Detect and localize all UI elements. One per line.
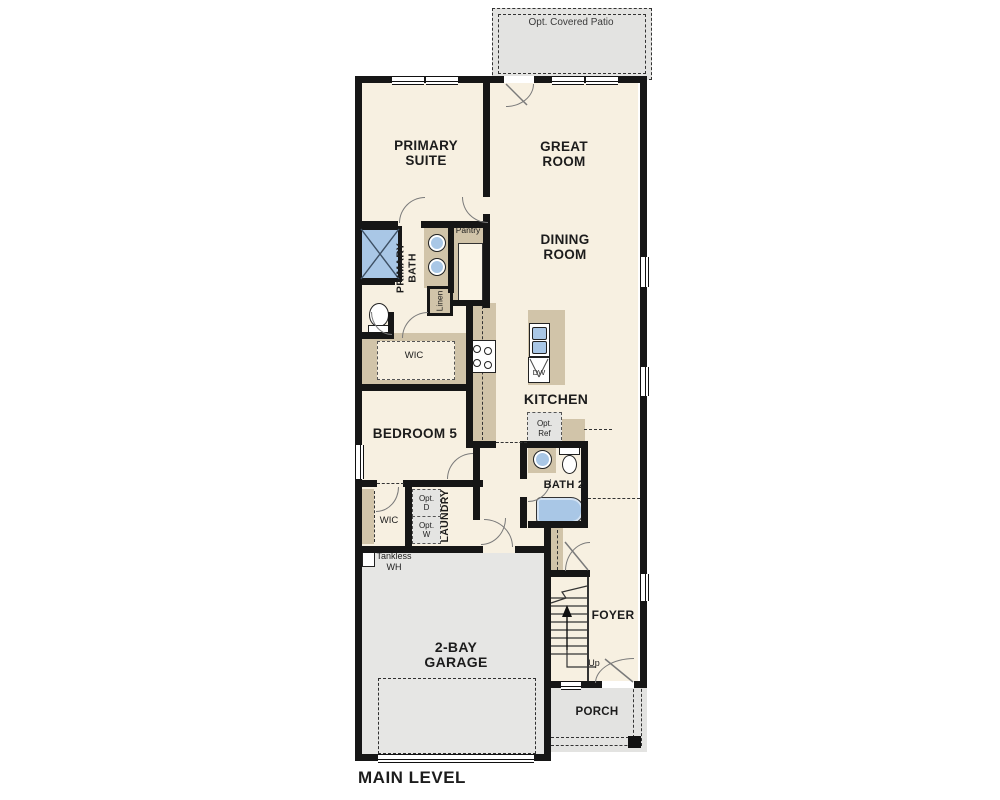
cooktop-icon <box>469 340 496 373</box>
island-sink-basin <box>532 341 547 354</box>
wall <box>466 305 473 391</box>
window <box>552 76 584 85</box>
window <box>355 445 364 479</box>
window <box>426 76 458 85</box>
porch-column <box>628 736 641 748</box>
wall <box>528 521 588 528</box>
tankless-line2: WH <box>376 562 411 573</box>
window <box>640 367 649 396</box>
room-label-bath2: BATH 2 <box>544 479 585 491</box>
room-label-great-room: GREAT <box>540 140 588 155</box>
sink-icon <box>428 234 446 252</box>
primary-bath-line2: BATH <box>407 243 419 293</box>
toilet-icon <box>562 455 577 474</box>
wall <box>544 521 551 761</box>
hall-ceiling-dash <box>588 498 640 499</box>
wall <box>355 279 395 285</box>
kitchen-counter <box>470 303 496 443</box>
wall <box>448 221 454 293</box>
window <box>561 681 581 690</box>
room-label-primary-suite-2: SUITE <box>405 154 446 169</box>
room-label-dining-room: DINING <box>540 233 589 248</box>
patio-door-opening <box>504 76 534 83</box>
kitchen-counter-dash <box>482 306 483 440</box>
room-label-primary-suite: PRIMARY <box>394 139 458 154</box>
opt-dryer-label-2: D <box>424 503 430 512</box>
label-linen: Linen <box>435 291 444 312</box>
window <box>392 76 424 85</box>
sink-icon <box>533 450 552 469</box>
dishwasher-label: DW <box>533 369 546 377</box>
garage-door-dashed-outline <box>378 678 536 754</box>
label-wic-primary: WIC <box>405 351 423 361</box>
label-tankless-wh: Tankless WH <box>376 551 411 573</box>
opt-washer-box: Opt. W <box>412 516 441 544</box>
room-label-primary-bath: PRIMARY BATH <box>395 243 418 293</box>
wall <box>466 391 473 448</box>
window <box>586 76 618 85</box>
ref-counter-dash <box>584 429 612 430</box>
opt-ref-label-1: Opt. <box>537 419 552 428</box>
room-label-dining-room-2: ROOM <box>543 248 586 263</box>
cased-opening-dash <box>377 483 404 484</box>
opt-dryer-label-1: Opt. <box>419 494 434 503</box>
burner-icon <box>484 347 492 355</box>
label-pantry: Pantry <box>456 226 481 235</box>
opt-dryer-box: Opt. D <box>412 489 441 517</box>
opt-washer-label-2: W <box>423 530 431 539</box>
room-label-great-room-2: ROOM <box>542 155 585 170</box>
wall <box>405 487 412 547</box>
bedroom5-wic-shelf-dash <box>374 491 375 542</box>
ref-counter <box>560 419 585 442</box>
room-label-garage-2: GARAGE <box>424 655 487 670</box>
pantry-shelf <box>458 243 483 301</box>
wall <box>544 570 590 577</box>
burner-icon <box>473 345 481 353</box>
wall <box>355 480 377 487</box>
wall <box>355 546 483 553</box>
primary-bath-line1: PRIMARY <box>395 243 407 293</box>
room-label-kitchen: KITCHEN <box>524 392 588 407</box>
wall <box>355 221 398 228</box>
room-label-laundry: LAUNDRY <box>440 489 452 542</box>
room-label-porch: PORCH <box>575 706 618 719</box>
page-title: MAIN LEVEL <box>358 768 466 788</box>
wall <box>520 441 527 479</box>
opt-washer-label-1: Opt. <box>419 521 434 530</box>
room-label-foyer: FOYER <box>592 609 635 622</box>
bedroom5-wic-shelf <box>362 489 374 544</box>
hall-closet-rod-dash <box>557 530 558 570</box>
tankless-water-heater-icon <box>362 552 375 567</box>
floor-plan: Opt. Covered Patio DW Opt. Ref Opt. <box>0 0 1000 800</box>
wall <box>483 214 490 308</box>
opt-ref-label-2: Ref <box>538 429 550 438</box>
room-label-bedroom5: BEDROOM 5 <box>373 427 457 442</box>
sink-icon <box>428 258 446 276</box>
cased-opening-dash <box>496 442 527 443</box>
wall <box>527 441 588 448</box>
wall <box>403 480 483 487</box>
garage-door <box>378 754 534 763</box>
wall <box>483 76 490 197</box>
window <box>640 574 649 601</box>
wall <box>355 384 473 391</box>
patio-label: Opt. Covered Patio <box>528 17 613 28</box>
wall <box>355 76 362 761</box>
label-up: Up <box>588 659 600 669</box>
burner-icon <box>484 361 492 369</box>
wall <box>466 441 496 448</box>
island-sink-basin <box>532 327 547 340</box>
burner-icon <box>473 359 481 367</box>
label-wic-bedroom5: WIC <box>380 516 398 526</box>
tankless-line1: Tankless <box>376 551 411 562</box>
bathtub-icon <box>536 497 584 524</box>
window <box>640 257 649 287</box>
wall <box>473 448 480 520</box>
wall <box>520 497 527 528</box>
wall <box>634 681 647 688</box>
